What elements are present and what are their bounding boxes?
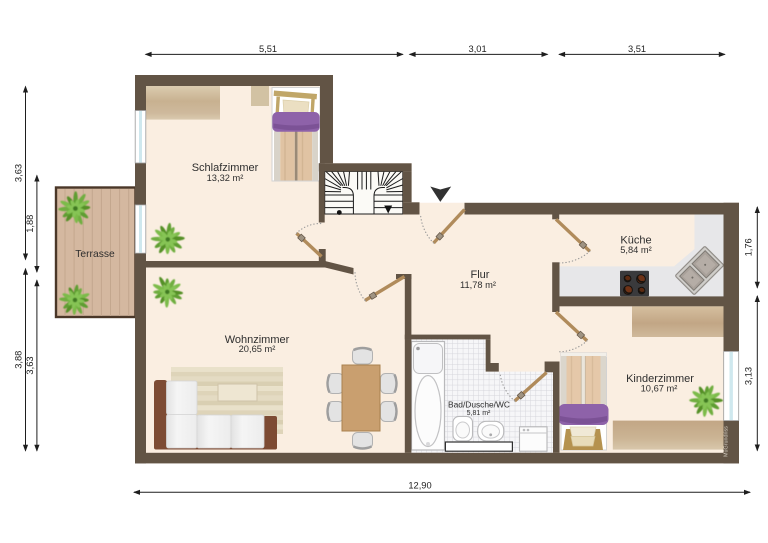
svg-text:5,51: 5,51 [259,44,277,54]
svg-text:5,84 m²: 5,84 m² [620,245,652,255]
svg-text:10,67 m²: 10,67 m² [641,384,678,394]
svg-text:Bad/Dusche/WC: Bad/Dusche/WC [448,400,510,410]
svg-text:3,63: 3,63 [14,164,24,182]
svg-text:11,78 m²: 11,78 m² [460,280,496,290]
svg-text:5,81 m²: 5,81 m² [467,410,491,417]
svg-text:MüGrundriss: MüGrundriss [724,426,730,457]
svg-text:1,76: 1,76 [744,238,754,256]
svg-text:20,65 m²: 20,65 m² [239,344,276,354]
svg-text:12,90: 12,90 [408,481,431,491]
svg-text:3,13: 3,13 [744,367,754,385]
svg-text:3,63: 3,63 [25,356,35,374]
svg-text:3,88: 3,88 [14,351,24,369]
svg-text:13,32 m²: 13,32 m² [207,173,244,183]
svg-text:1,88: 1,88 [25,215,35,233]
svg-text:Terrasse: Terrasse [75,249,115,260]
svg-text:3,01: 3,01 [469,44,487,54]
svg-text:3,51: 3,51 [628,44,646,54]
